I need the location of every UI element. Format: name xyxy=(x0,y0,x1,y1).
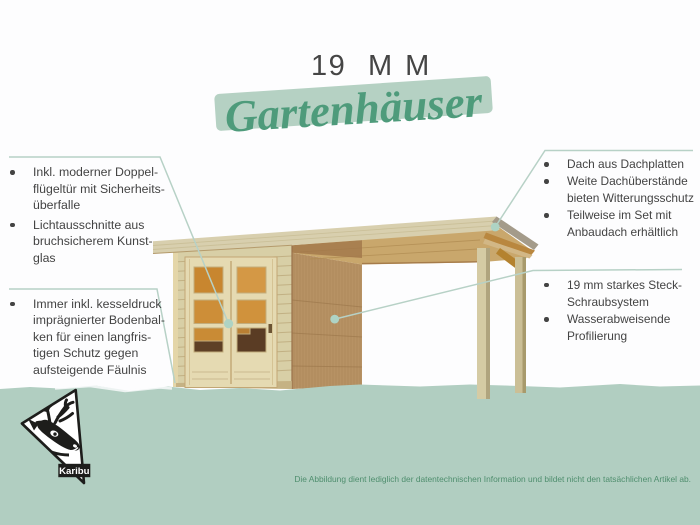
svg-text:Karibu: Karibu xyxy=(59,466,90,477)
